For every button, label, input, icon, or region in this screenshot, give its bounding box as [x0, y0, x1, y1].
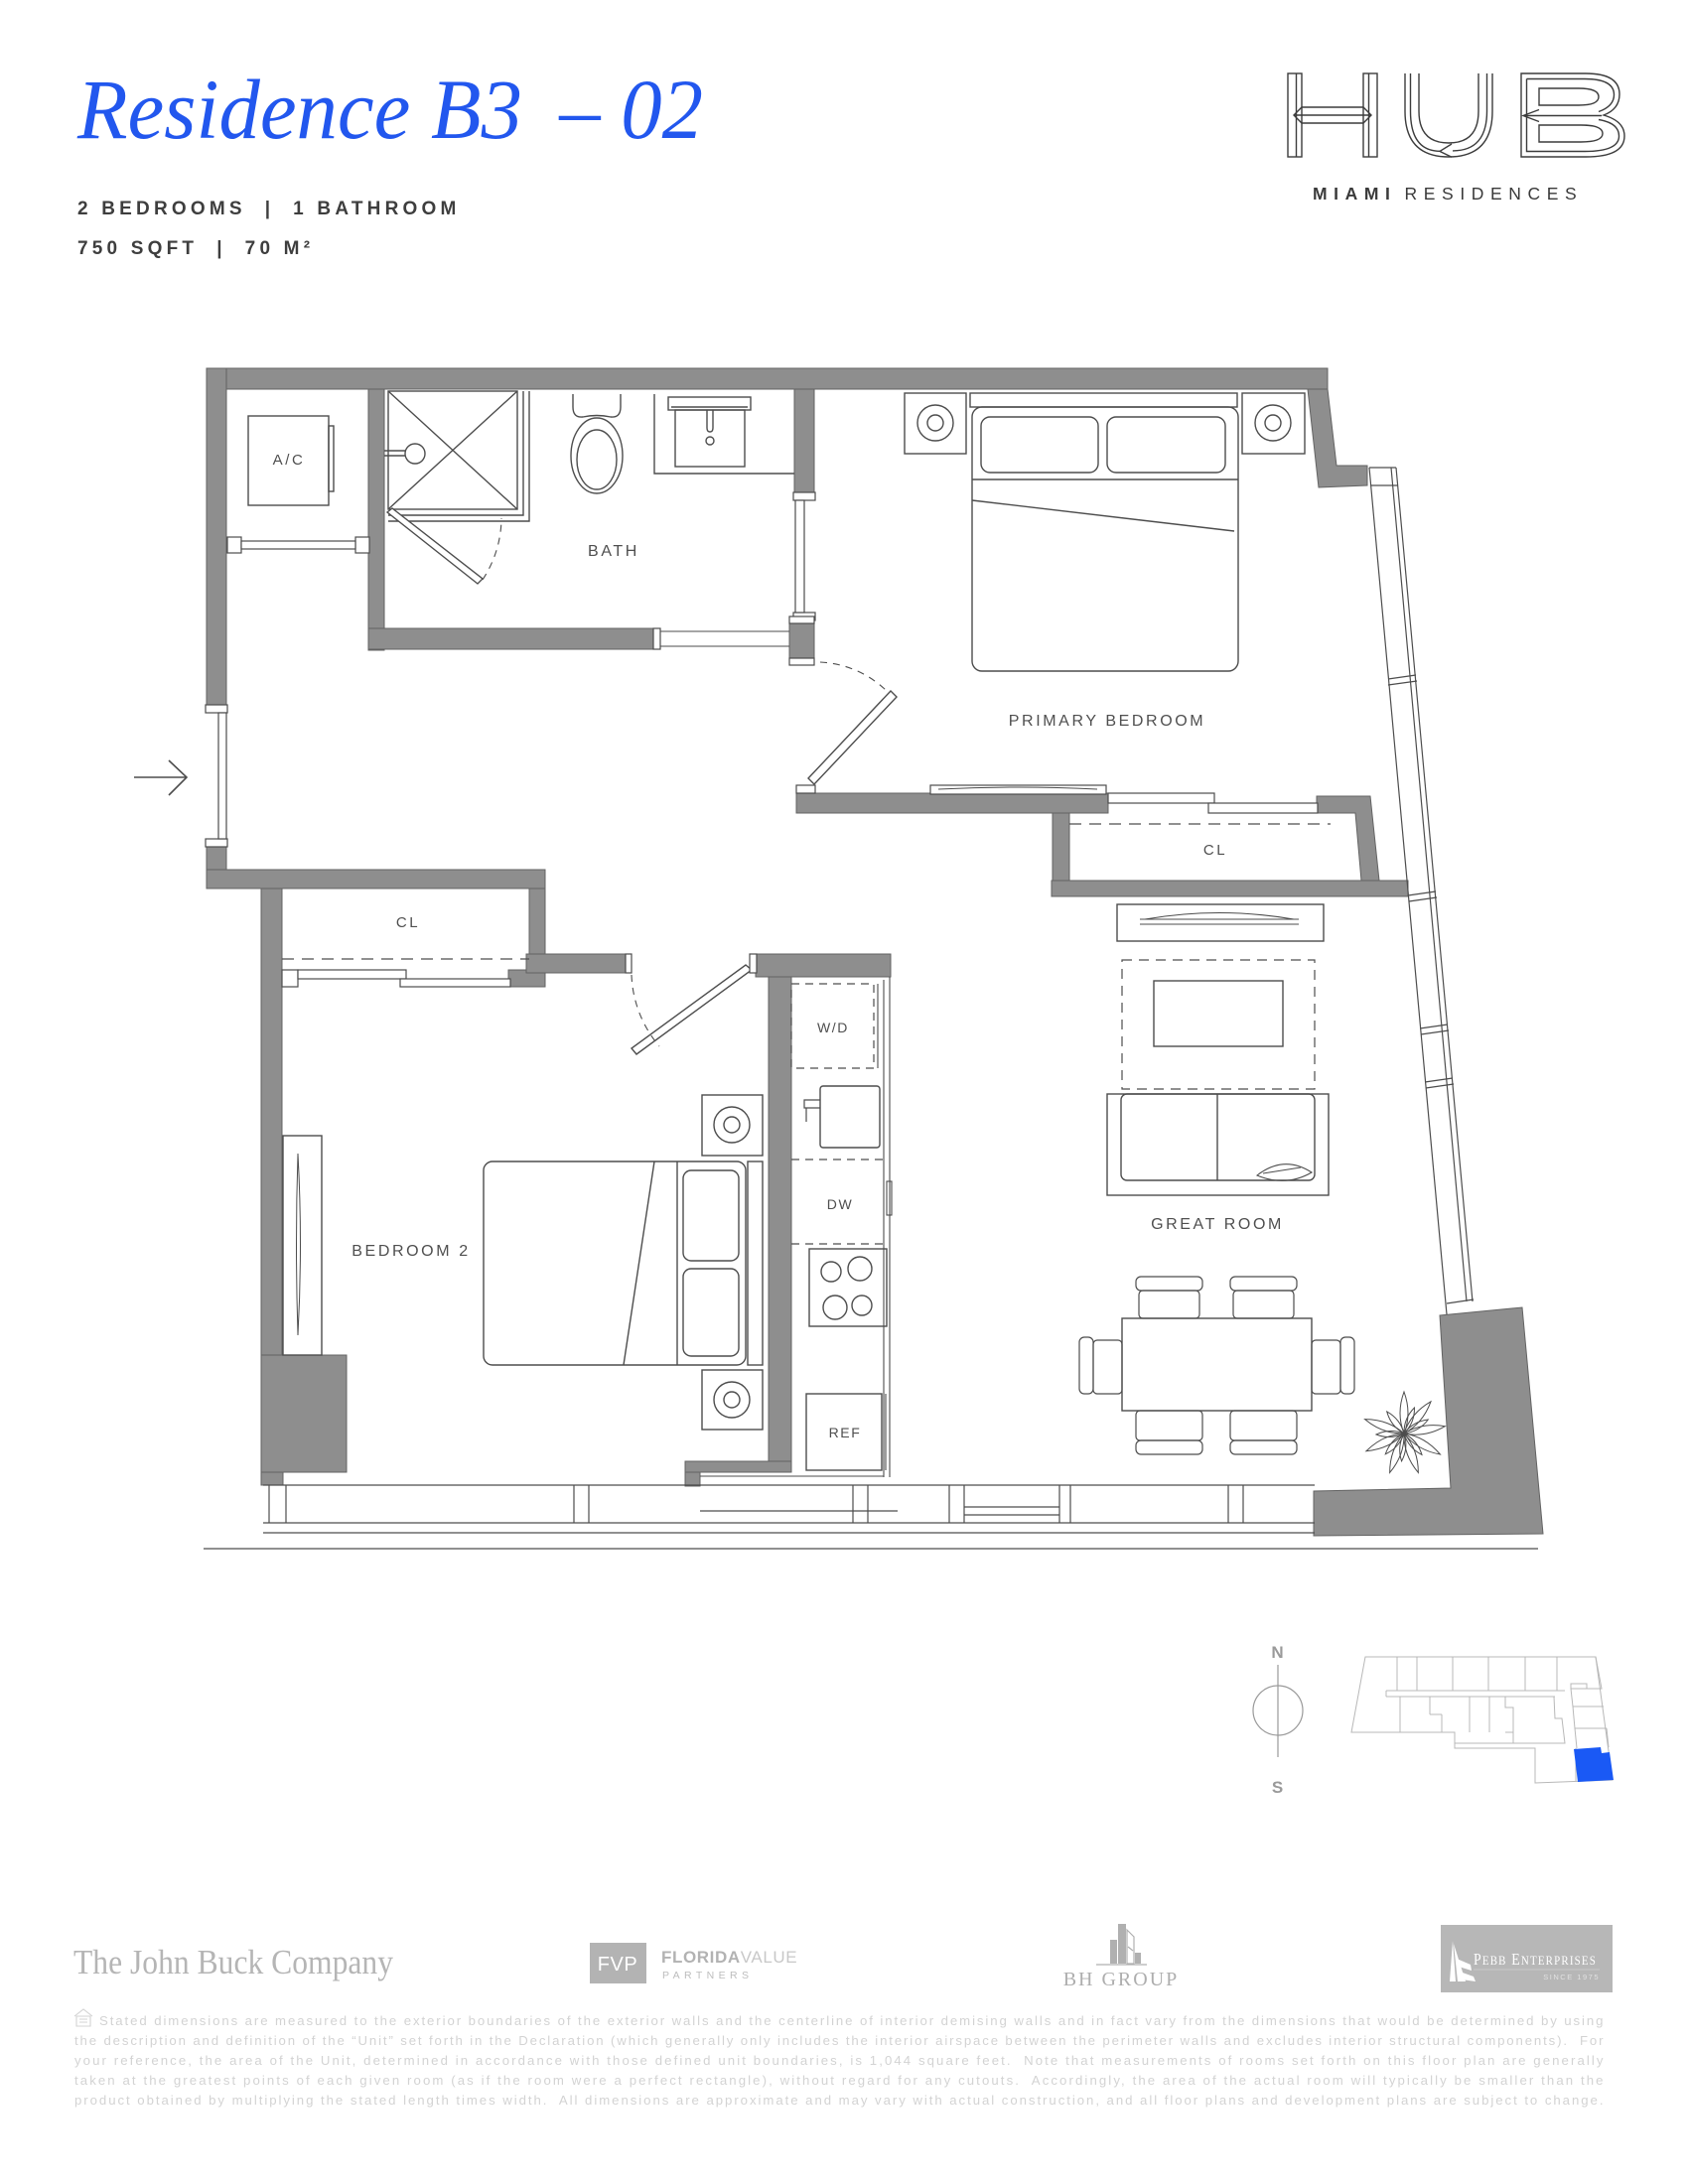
svg-text:GREAT ROOM: GREAT ROOM: [1151, 1216, 1284, 1233]
svg-text:taken at the greatest points o: taken at the greatest points of each giv…: [74, 2073, 1604, 2088]
svg-text:2 BEDROOMS | 1 BATHROOM: 2 BEDROOMS | 1 BATHROOM: [77, 199, 460, 219]
svg-text:product obtained by multiplyin: product obtained by multiplying the stat…: [74, 2093, 1604, 2108]
svg-text:FLORIDAVALUE: FLORIDAVALUE: [661, 1948, 797, 1967]
svg-text:Residence B3 – 02: Residence B3 – 02: [76, 62, 703, 157]
svg-text:PARTNERS: PARTNERS: [662, 1970, 753, 1981]
svg-text:CL: CL: [1203, 842, 1227, 859]
svg-text:N: N: [1271, 1643, 1284, 1662]
svg-text:your reference, the area of th: your reference, the area of the Unit, de…: [74, 2053, 1604, 2068]
svg-text:PRIMARY BEDROOM: PRIMARY BEDROOM: [1009, 713, 1205, 730]
svg-text:Stated dimensions are measured: Stated dimensions are measured to the ex…: [99, 2013, 1604, 2028]
svg-text:SINCE 1975: SINCE 1975: [1543, 1973, 1600, 1981]
svg-text:PEBB ENTERPRISES: PEBB ENTERPRISES: [1474, 1950, 1597, 1969]
svg-text:W/D: W/D: [817, 1020, 849, 1035]
svg-text:DW: DW: [827, 1196, 854, 1212]
svg-text:S: S: [1272, 1778, 1284, 1797]
svg-text:BH GROUP: BH GROUP: [1063, 1969, 1180, 1990]
svg-text:The John Buck Company: The John Buck Company: [73, 1943, 393, 1981]
svg-text:BEDROOM 2: BEDROOM 2: [352, 1243, 470, 1260]
svg-text:CL: CL: [396, 914, 420, 931]
svg-text:REF: REF: [829, 1425, 862, 1440]
svg-text:MIAMIRESIDENCES: MIAMIRESIDENCES: [1313, 184, 1583, 204]
svg-text:the description and definition: the description and definition of the “U…: [74, 2033, 1604, 2048]
svg-text:FVP: FVP: [598, 1954, 637, 1976]
svg-text:A/C: A/C: [273, 452, 306, 469]
svg-text:BATH: BATH: [588, 543, 639, 560]
svg-text:750 SQFT | 70 M²: 750 SQFT | 70 M²: [77, 238, 314, 259]
